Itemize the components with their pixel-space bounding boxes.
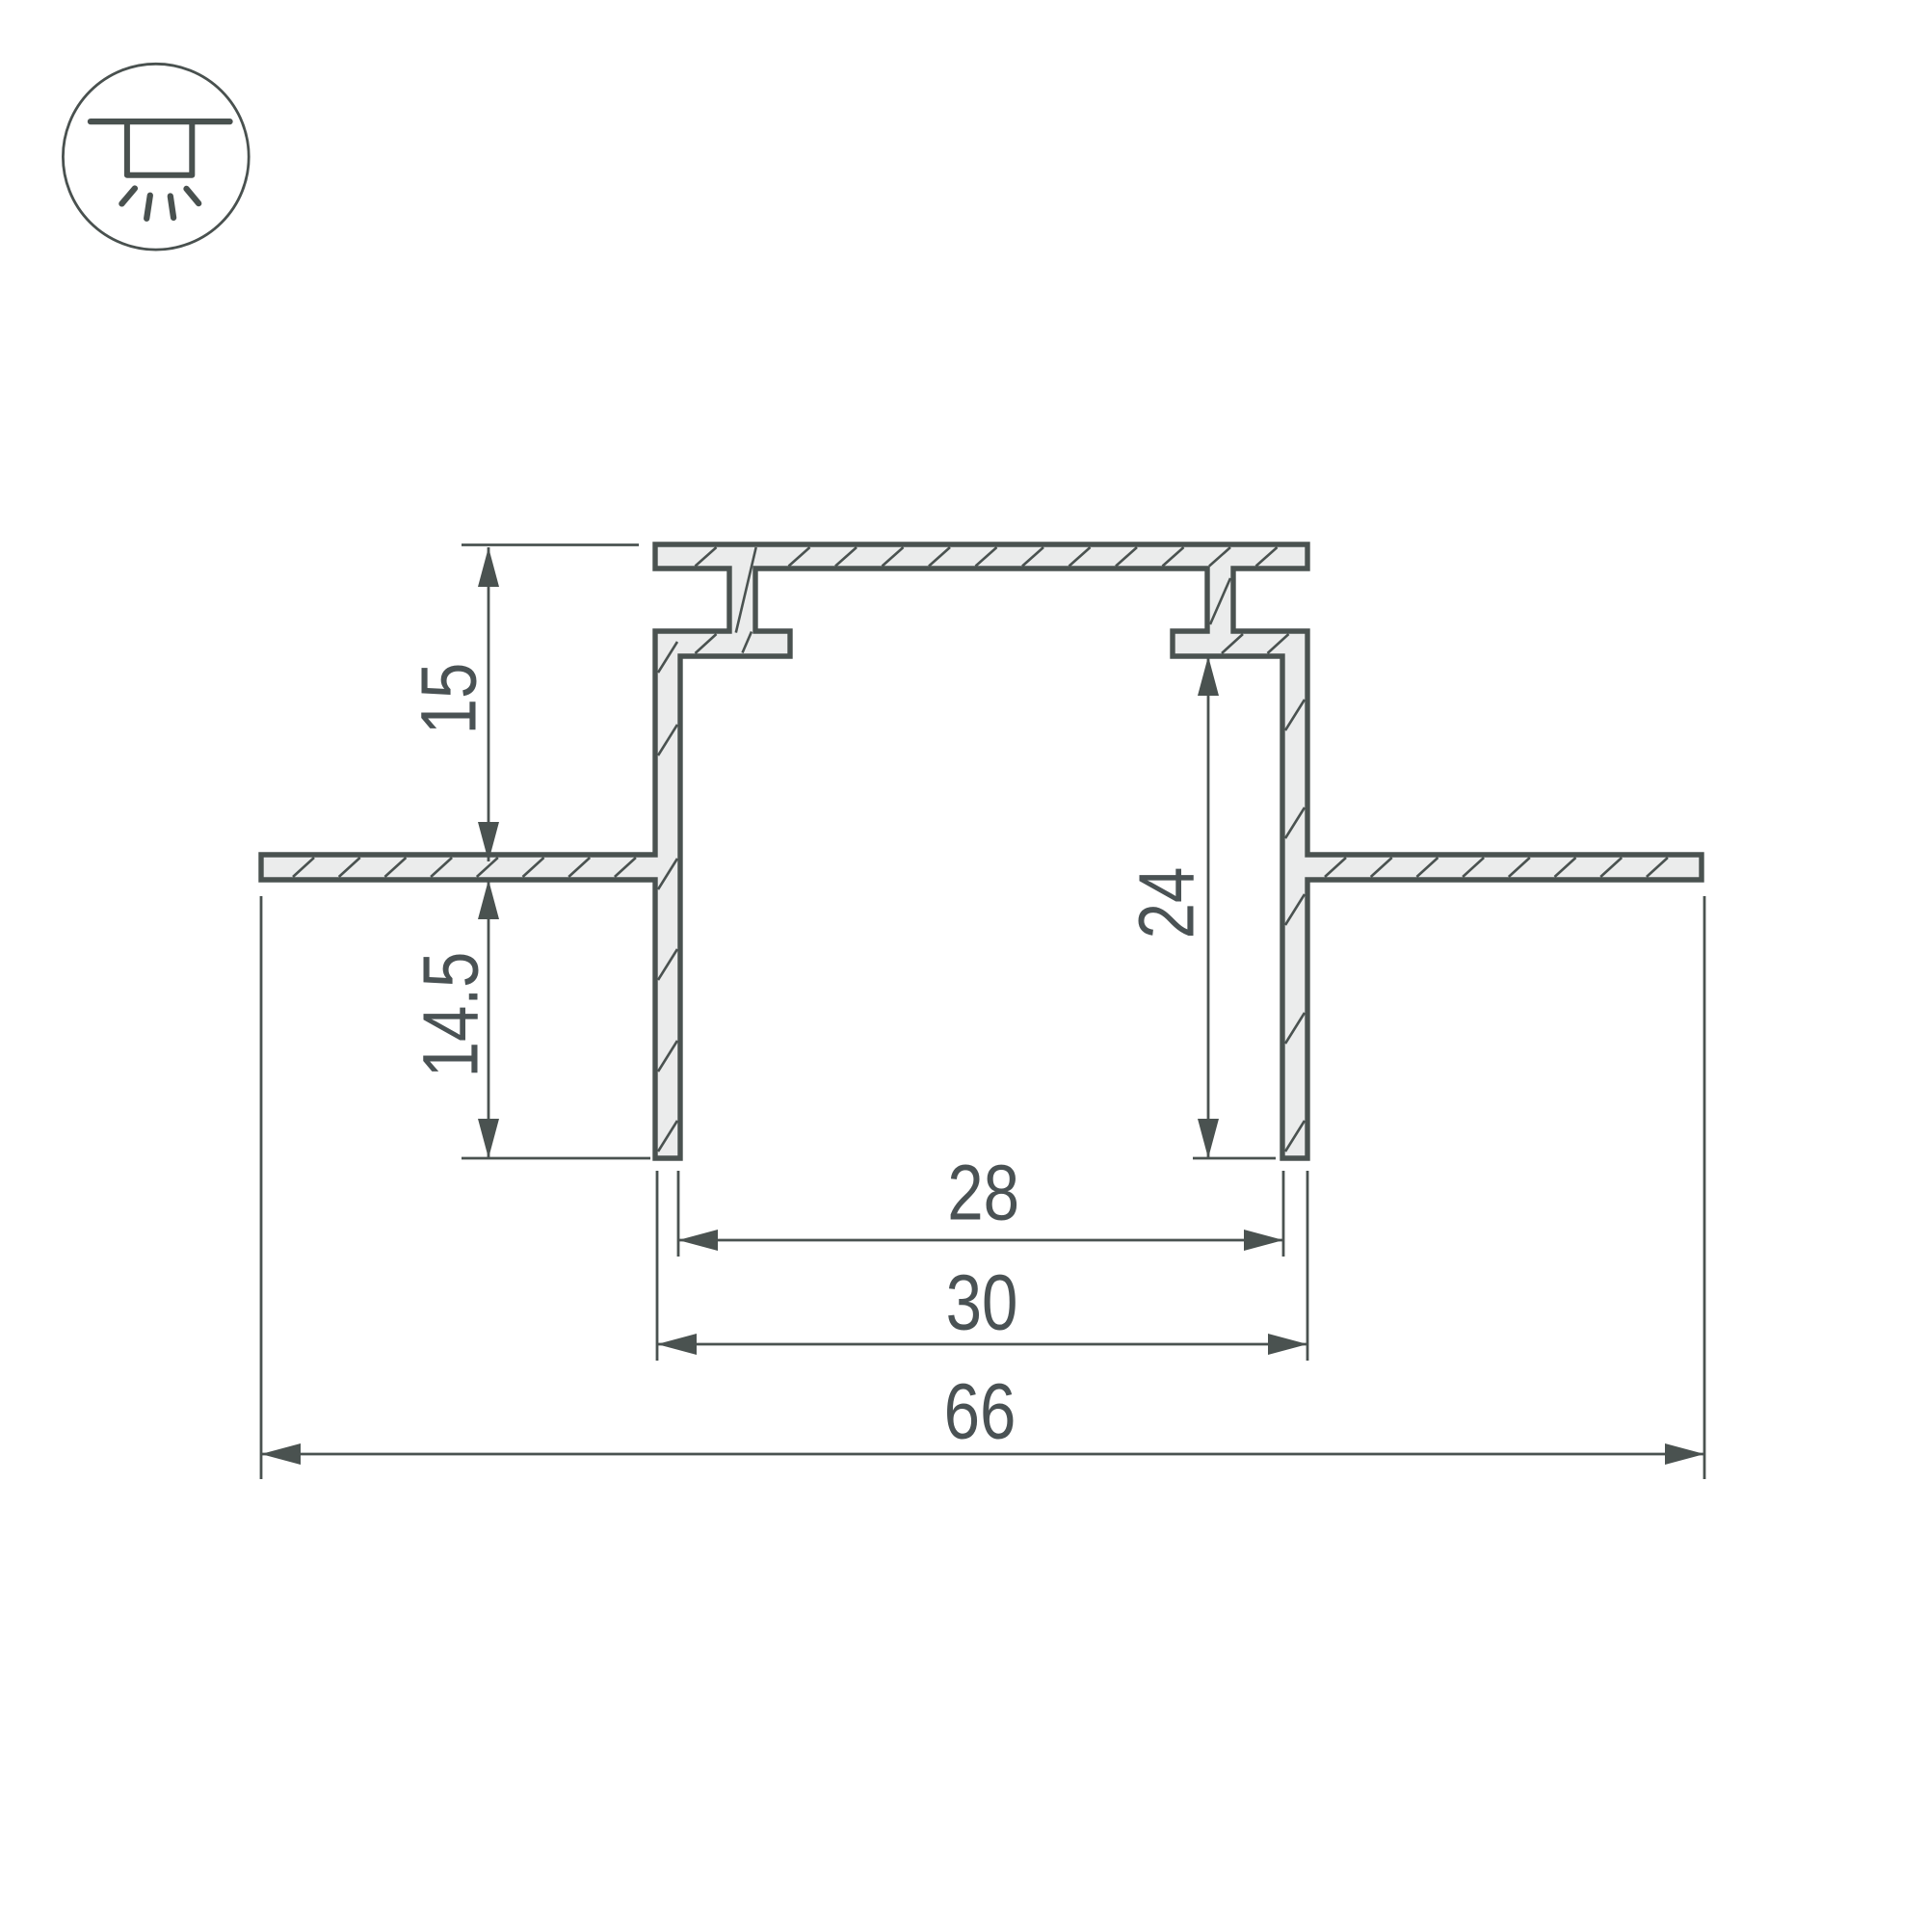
svg-text:66: 66 (944, 1366, 1016, 1455)
svg-text:15: 15 (404, 663, 492, 735)
svg-text:28: 28 (947, 1148, 1019, 1236)
svg-text:14.5: 14.5 (406, 952, 494, 1078)
svg-text:24: 24 (1122, 867, 1210, 940)
svg-text:30: 30 (946, 1257, 1018, 1346)
